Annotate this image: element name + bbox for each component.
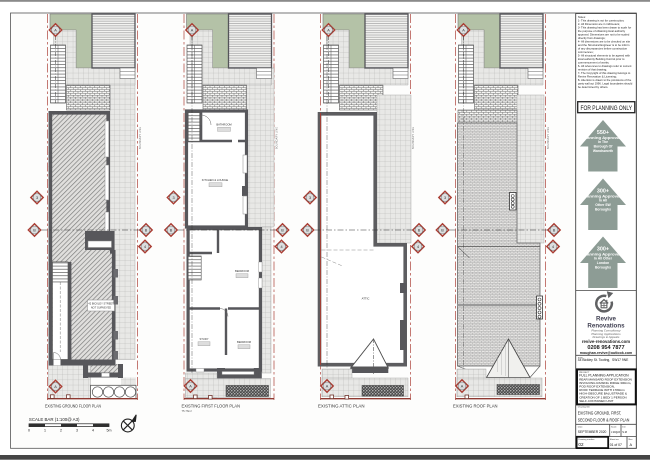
svg-text:Other SW: Other SW	[595, 203, 611, 207]
svg-text:commencement of works;: commencement of works;	[578, 61, 610, 65]
svg-text:5m: 5m	[107, 428, 112, 432]
svg-text:Sheet no.: Sheet no.	[610, 438, 620, 441]
svg-text:BOUNDARY LINE: BOUNDARY LINE	[412, 127, 415, 149]
svg-text:A: A	[191, 28, 194, 32]
svg-text:In All: In All	[599, 199, 607, 203]
svg-text:London: London	[597, 261, 609, 265]
svg-text:party wall act 1996. Legal bou: party wall act 1996. Legal boundaries sh…	[578, 82, 633, 86]
svg-text:and the Structural Engineer is: and the Structural Engineer is to be inf…	[578, 43, 630, 47]
svg-text:ATTIC: ATTIC	[362, 297, 370, 301]
svg-text:2- All Dimension are in millim: 2- All Dimension are in millimeters;	[578, 22, 620, 26]
svg-text:Planning Approvals: Planning Approvals	[583, 136, 623, 140]
svg-text:3- This drawing has been drawn: 3- This drawing has been drawn to scale …	[578, 26, 631, 30]
svg-text:revive-renovations.com: revive-renovations.com	[582, 339, 630, 344]
svg-text:B: B	[306, 228, 309, 232]
svg-text:revision of that drawing;: revision of that drawing;	[578, 68, 607, 72]
svg-text:SECOND FLOOR & ROOF PLAN: SECOND FLOOR & ROOF PLAN	[578, 417, 630, 422]
svg-text:B: B	[553, 228, 556, 232]
svg-text:S.M: S.M	[622, 430, 627, 434]
svg-text:3: 3	[36, 196, 38, 200]
svg-text:1: 1	[44, 428, 46, 432]
svg-text:1:100@A3: 1:100@A3	[611, 431, 621, 434]
svg-text:FOR PLANNING ONLY: FOR PLANNING ONLY	[581, 105, 633, 112]
svg-text:A: A	[462, 28, 465, 32]
svg-text:Drawing number: Drawing number	[578, 438, 594, 441]
svg-text:SEPTEMBER 2020: SEPTEMBER 2020	[578, 430, 607, 434]
svg-text:EXISTING GROUND FLOOR PLAN: EXISTING GROUND FLOOR PLAN	[45, 403, 101, 408]
svg-text:A: A	[54, 28, 57, 32]
svg-text:BOUNDARY LINE: BOUNDARY LINE	[139, 127, 142, 149]
svg-text:BATHROOM: BATHROOM	[216, 123, 232, 127]
svg-text:B: B	[170, 228, 173, 232]
svg-text:2: 2	[60, 428, 62, 432]
svg-text:EXISTING ROOF PLAN: EXISTING ROOF PLAN	[453, 403, 498, 408]
svg-text:3: 3	[309, 196, 311, 200]
svg-text:Notes:: Notes:	[578, 15, 586, 19]
svg-text:SCALE BAR (1:100@ A3): SCALE BAR (1:100@ A3)	[29, 417, 80, 422]
svg-text:SELF-CONTAINED UNIT: SELF-CONTAINED UNIT	[579, 399, 613, 403]
svg-text:directly from drawings;: directly from drawings;	[578, 36, 606, 40]
svg-text:01 of 07: 01 of 07	[610, 443, 622, 447]
svg-text:7- The Copyright of this drawi: 7- The Copyright of this drawing belongs…	[578, 71, 631, 75]
svg-text:A: A	[461, 384, 464, 388]
svg-text:3: 3	[444, 196, 446, 200]
svg-text:In The: In The	[598, 140, 608, 144]
svg-text:Revive Renovation & Licensing;: Revive Renovation & Licensing;	[578, 75, 617, 79]
svg-text:Date: Date	[578, 425, 583, 428]
svg-text:4: 4	[92, 428, 94, 432]
svg-text:1- This drawing is not for con: 1- This drawing is not for construction;	[578, 19, 625, 23]
svg-text:4: 4	[144, 245, 146, 249]
svg-text:EXISTING ATTIC PLAN: EXISTING ATTIC PLAN	[318, 403, 365, 408]
svg-text:BOUNDARY LINE: BOUNDARY LINE	[275, 127, 278, 149]
svg-text:44 Bickley St. Tooting, SW17: 44 Bickley St. Tooting, SW17 9NE	[578, 358, 629, 362]
svg-text:be determined by others.: be determined by others.	[578, 85, 609, 89]
svg-text:6- All references to drawings: 6- All references to drawings refer to c…	[578, 64, 632, 68]
svg-text:NOT SURVEYED: NOT SURVEYED	[91, 306, 111, 310]
svg-text:Boroughs: Boroughs	[595, 266, 611, 270]
svg-text:A: A	[327, 28, 330, 32]
svg-text:4- All dimensions are to be ch: 4- All dimensions are to be checked on s…	[578, 40, 631, 44]
svg-text:8- Attention is drawn to the p: 8- Attention is drawn to the provisions …	[578, 78, 632, 82]
svg-text:BOUNDARY LINE: BOUNDARY LINE	[547, 127, 550, 149]
svg-text:approval. Dimensions are not t: approval. Dimensions are not to be scale…	[578, 33, 630, 37]
svg-text:B: B	[441, 228, 444, 232]
svg-text:02: 02	[578, 442, 584, 447]
svg-text:5- All structural elements to: 5- All structural elements to be agreed …	[578, 54, 630, 58]
svg-text:3: 3	[76, 428, 78, 432]
svg-text:Scale: Scale	[611, 426, 617, 428]
svg-text:Wandsworth: Wandsworth	[593, 149, 613, 153]
svg-text:Planning Approvals: Planning Approvals	[583, 252, 623, 256]
svg-text:B: B	[281, 228, 284, 232]
svg-text:EXISTING FIRST FLOOR PLAN: EXISTING FIRST FLOOR PLAN	[182, 403, 241, 408]
svg-text:KITCHEN & LOUNGE: KITCHEN & LOUNGE	[202, 178, 229, 182]
svg-text:Borough Of: Borough Of	[594, 145, 614, 149]
svg-text:0: 0	[28, 428, 30, 432]
svg-text:B: B	[418, 228, 421, 232]
svg-text:Drawing title: Drawing title	[578, 406, 591, 409]
svg-text:3: 3	[172, 196, 174, 200]
svg-text:4: 4	[280, 245, 282, 249]
svg-text:4: 4	[417, 245, 419, 249]
svg-text:42 BICKLEY STREET: 42 BICKLEY STREET	[88, 302, 114, 306]
svg-text:BEDROOM: BEDROOM	[237, 340, 252, 344]
svg-text:local authority Building Contr: local authority Building Control prior t…	[578, 57, 625, 61]
svg-text:A: A	[326, 384, 329, 388]
svg-text:Boroughs: Boroughs	[595, 208, 611, 212]
svg-text:the purpose of obtaining local: the purpose of obtaining local authority	[578, 29, 626, 33]
svg-text:BEDROOM: BEDROOM	[235, 269, 250, 273]
svg-text:4: 4	[552, 245, 554, 249]
svg-text:In All Other: In All Other	[594, 257, 613, 261]
svg-text:EXISTING GROUND, FIRST,: EXISTING GROUND, FIRST,	[578, 411, 622, 416]
svg-text:B: B	[145, 228, 148, 232]
svg-text:75.76m²: 75.76m²	[182, 409, 192, 413]
svg-text:STUDY: STUDY	[199, 337, 208, 341]
svg-text:B: B	[33, 228, 36, 232]
svg-text:Planning Approvals: Planning Approvals	[583, 194, 623, 198]
svg-text:moughan.revive@outlook.com: moughan.revive@outlook.com	[580, 351, 632, 355]
svg-text:A: A	[189, 384, 192, 388]
svg-text:of any discrepancies before co: of any discrepancies before construction	[578, 47, 628, 51]
svg-text:A: A	[54, 385, 57, 389]
